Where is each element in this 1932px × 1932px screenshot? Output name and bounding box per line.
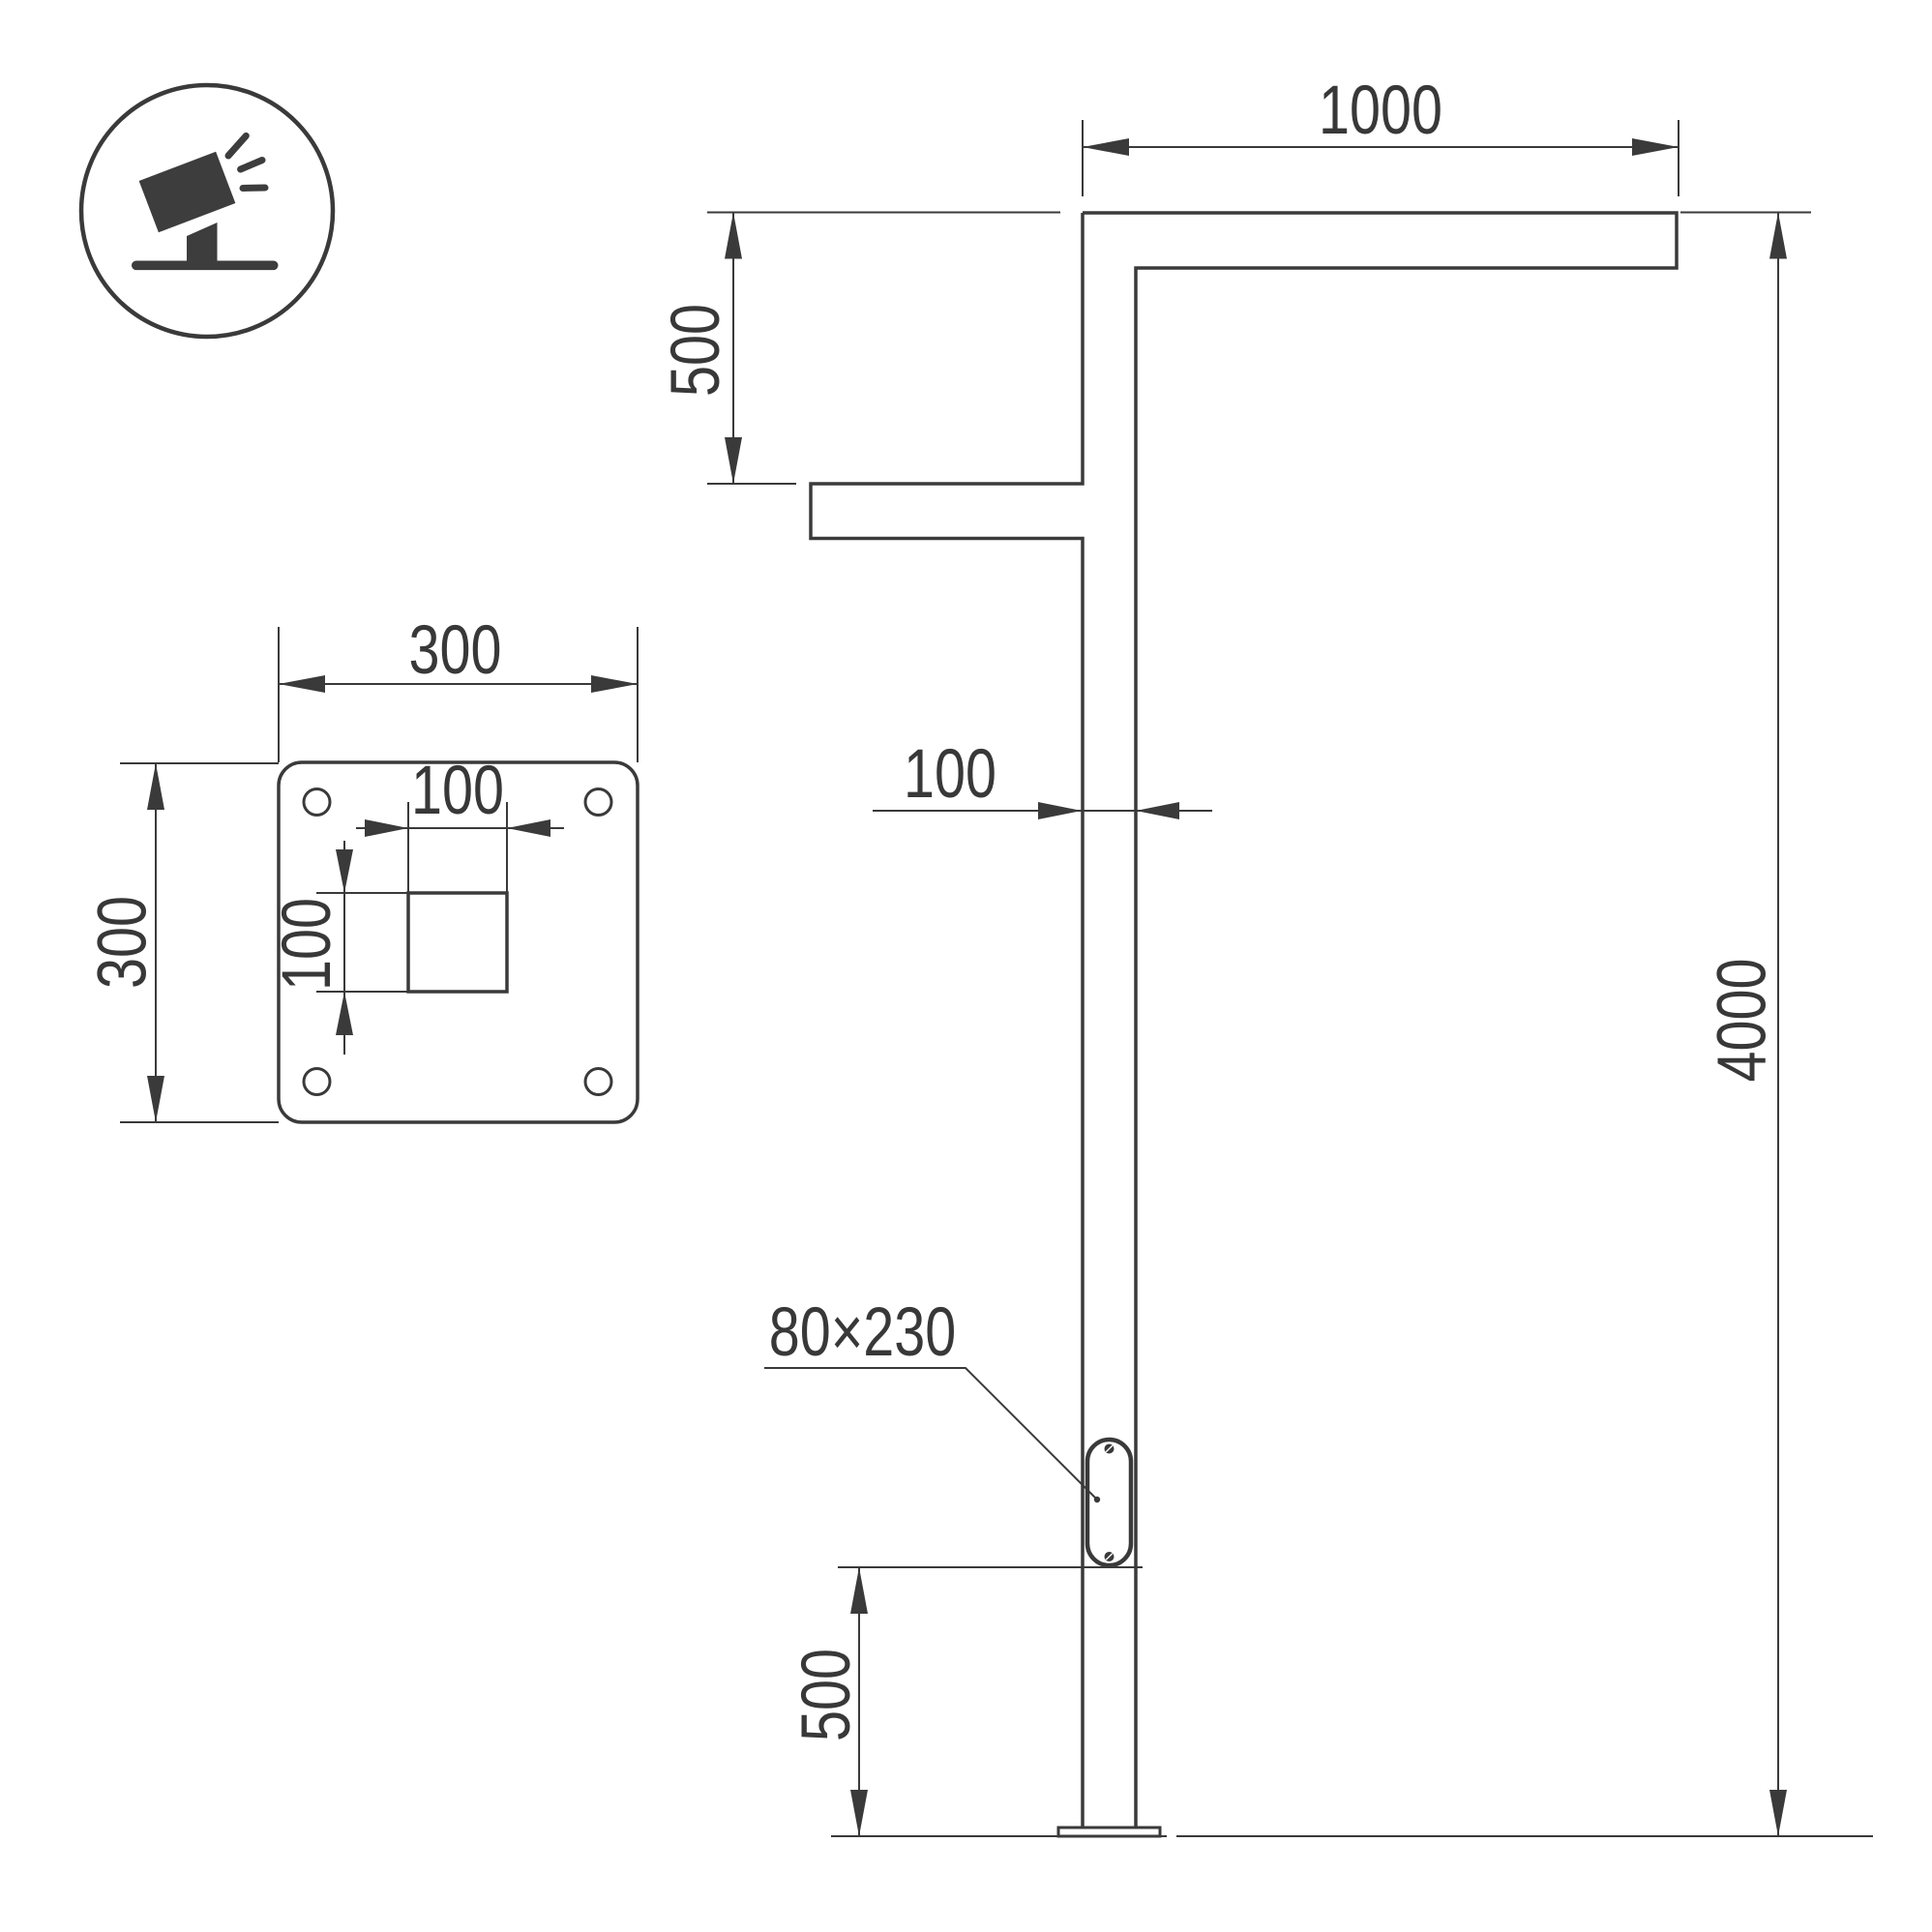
svg-text:4000: 4000 [1704, 959, 1780, 1083]
svg-text:300: 300 [409, 611, 502, 688]
svg-text:80×230: 80×230 [769, 1293, 956, 1370]
svg-text:1000: 1000 [1319, 72, 1442, 148]
svg-text:100: 100 [268, 898, 344, 991]
svg-text:500: 500 [788, 1649, 864, 1741]
svg-text:100: 100 [411, 752, 504, 828]
svg-text:500: 500 [657, 304, 733, 397]
svg-text:300: 300 [84, 896, 161, 989]
svg-text:100: 100 [904, 735, 996, 812]
